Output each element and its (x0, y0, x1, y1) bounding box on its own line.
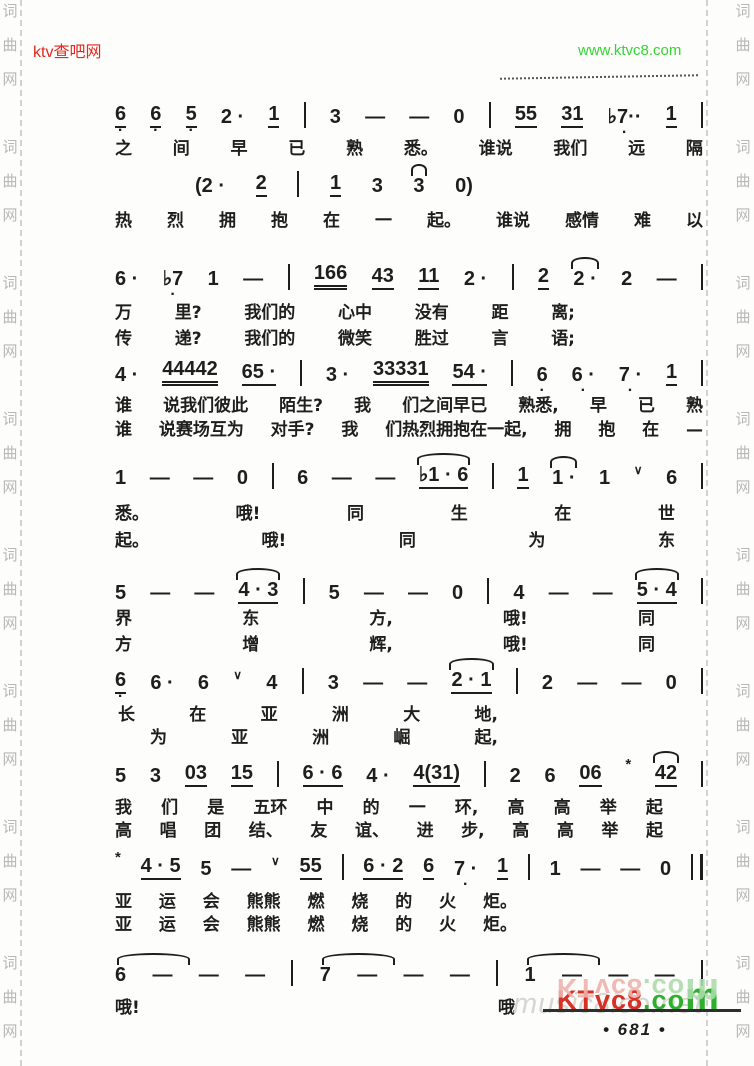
lyric-syllable: 我 (115, 793, 132, 818)
side-watermark-char: 网 (2, 752, 17, 767)
barline (484, 761, 486, 787)
lyric-syllable: 谁 (115, 415, 132, 440)
note-token: ♭1 · 6 (419, 464, 468, 489)
lyric-syllable: 一 (375, 206, 392, 231)
note-token: * (115, 850, 121, 867)
lyrics-row: 界东方,哦!同 (115, 604, 655, 629)
side-watermark-char: 网 (735, 208, 750, 223)
lyric-syllable: 环, (455, 793, 478, 818)
side-watermark-char: 词 (735, 956, 750, 971)
lyric-syllable: 高 (115, 816, 132, 841)
lyric-syllable: 增 (242, 630, 259, 655)
note-token: 06 (579, 762, 601, 787)
lyric-syllable: 亚 (115, 910, 132, 935)
note-token: 4 · (115, 364, 138, 386)
side-watermark-char: 词 (2, 4, 17, 19)
barline (304, 102, 306, 128)
note-token: 65 · (242, 361, 276, 386)
lyric-syllable: 团 (204, 816, 221, 841)
lyric-syllable: 高 (554, 793, 571, 818)
lyric-syllable: 亚 (115, 887, 132, 912)
note-token: 4(31) (413, 762, 460, 787)
barline (297, 171, 299, 197)
lyric-syllable: 同 (638, 604, 655, 629)
lyric-syllable: 在 (554, 499, 571, 524)
side-watermark-char: 曲 (735, 310, 750, 325)
barline (701, 360, 703, 386)
note-token: 7 (320, 964, 331, 986)
barline (528, 854, 530, 880)
note-token: — (150, 582, 170, 604)
barline (701, 264, 703, 290)
lyric-syllable: 对手? (271, 415, 315, 440)
note-token: 2 (538, 265, 549, 290)
lyric-syllable: 我们 (553, 134, 587, 159)
lyric-syllable: 烈 (167, 206, 184, 231)
note-token: — (404, 964, 424, 986)
logo-reflection-m: m (685, 970, 720, 1012)
note-token: 4 · 5 (141, 855, 181, 880)
side-watermark-char: 词 (735, 140, 750, 155)
note-token: — (407, 672, 427, 694)
lyrics-row: 哦!哦 (115, 993, 515, 1018)
lyric-syllable: 拥 (219, 206, 236, 231)
ktvc8-url-watermark: www.ktvc8.com (578, 42, 681, 59)
note-token: 6 (423, 855, 434, 880)
note-token: — (577, 672, 597, 694)
barline (516, 668, 518, 694)
note-token: 1 (330, 172, 341, 197)
lyric-syllable: 我 (354, 391, 371, 416)
barline (701, 761, 703, 787)
note-token: 6 (115, 669, 126, 694)
note-token: — (364, 582, 384, 604)
lyric-syllable: 高 (557, 816, 574, 841)
scanned-sheet-music-page: 词曲网词曲网词曲网词曲网词曲网词曲网词曲网词曲网 词曲网词曲网词曲网词曲网词曲网… (0, 0, 754, 1066)
lyric-syllable: — (686, 420, 703, 440)
lyric-syllable: 地, (474, 700, 497, 725)
lyric-syllable: 炬。 (483, 887, 517, 912)
note-token: 1 (497, 855, 508, 880)
side-watermark-char: 网 (735, 480, 750, 495)
note-token: — (450, 964, 470, 986)
side-watermark-char: 词 (2, 684, 17, 699)
side-watermark-char: 曲 (2, 174, 17, 189)
note-token: — (581, 858, 601, 880)
side-watermark-char: 网 (735, 72, 750, 87)
note-token: 2 (510, 765, 521, 787)
note-token: 6 (297, 467, 308, 489)
lyric-syllable: 早 (231, 134, 248, 159)
note-token: 1 (666, 103, 677, 128)
barline (277, 761, 279, 787)
note-token: 5 (200, 858, 211, 880)
lyric-syllable: 在 (323, 206, 340, 231)
side-watermark-char: 网 (2, 480, 17, 495)
right-side-watermark-column: 词曲网词曲网词曲网词曲网词曲网词曲网词曲网词曲网 (733, 4, 753, 1066)
lyric-syllable: 亚 (231, 723, 248, 748)
side-watermark-char: 网 (2, 72, 17, 87)
lyric-syllable: 结、 (249, 816, 283, 841)
lyric-syllable: 熟 (346, 134, 363, 159)
side-watermark-char: 曲 (2, 854, 17, 869)
lyric-syllable: 说我们彼此 (163, 391, 248, 416)
side-watermark-char: 词 (735, 548, 750, 563)
note-token: (2 · (195, 175, 225, 197)
lyric-syllable: 进 (417, 816, 434, 841)
lyric-syllable: 熊熊 (247, 887, 281, 912)
note-token: 0 (660, 858, 671, 880)
note-token: 43 (372, 265, 394, 290)
note-token: ∨ (271, 855, 280, 868)
barline (701, 668, 703, 694)
barline (512, 264, 514, 290)
side-watermark-char: 词 (2, 140, 17, 155)
notation-row: 5——4 · 35——04——5 · 4 (115, 574, 703, 604)
barline (288, 264, 290, 290)
lyric-syllable: 会 (203, 887, 220, 912)
lyrics-row: 为亚洲崛起, (150, 723, 498, 748)
note-token: 3 · (326, 364, 349, 386)
lyric-syllable: 东 (658, 526, 675, 551)
logo-reflection: KTvc8.com (557, 969, 720, 1012)
note-token: 15 (231, 762, 253, 787)
lyric-syllable: 崛 (393, 723, 410, 748)
lyric-syllable: 言 (491, 324, 508, 349)
note-token: — (621, 672, 641, 694)
lyrics-row: 之间早已熟悉。谁说我们远隔 (115, 134, 703, 159)
note-token: — (194, 582, 214, 604)
note-token: — (152, 964, 172, 986)
notation-row: 6 ·♭71—16643112 ·22 ·2— (115, 260, 703, 290)
lyric-syllable: 方, (369, 604, 392, 629)
note-token: 6 · 6 (303, 762, 343, 787)
lyric-syllable: 起, (475, 723, 498, 748)
note-token: 5 · 4 (637, 579, 677, 604)
lyric-syllable: 亚 (261, 700, 278, 725)
lyric-syllable: 感情 (565, 206, 599, 231)
note-token: 0 (666, 672, 677, 694)
notation-row: 66 ·6∨43——2 · 12——0 (115, 664, 703, 694)
lyric-syllable: 说赛场互为 (159, 415, 244, 440)
side-watermark-char: 词 (735, 820, 750, 835)
lyric-syllable: 已 (288, 134, 305, 159)
note-token: — (409, 106, 429, 128)
lyric-syllable: 火 (439, 910, 456, 935)
lyric-syllable: 抱 (598, 415, 615, 440)
lyric-syllable: 炬。 (483, 910, 517, 935)
note-token: 1 (208, 268, 219, 290)
lyric-syllable: 在 (642, 415, 659, 440)
note-token: — (357, 964, 377, 986)
lyric-syllable: 里? (175, 298, 202, 323)
barline (701, 102, 703, 128)
lyric-syllable: 熟 (686, 391, 703, 416)
lyric-syllable: 唱 (160, 816, 177, 841)
lyric-syllable: 离; (551, 298, 575, 323)
barline (342, 854, 344, 880)
barline (303, 578, 305, 604)
lyric-syllable: 长 (118, 700, 135, 725)
lyric-syllable: 中 (317, 793, 334, 818)
lyric-syllable: 同 (638, 630, 655, 655)
note-token: 5 (186, 103, 197, 128)
note-token: 4 · (366, 765, 389, 787)
barline (496, 960, 498, 986)
note-token: 44442 (162, 358, 218, 386)
note-token: 5 (115, 582, 126, 604)
lyric-syllable: 没有 (415, 298, 449, 323)
note-token: 6 (666, 467, 677, 489)
note-token: 11 (418, 265, 439, 290)
lyric-syllable: 哦! (503, 630, 528, 655)
note-token: — (657, 268, 677, 290)
left-dashed-border (20, 0, 22, 1066)
lyric-syllable: 运 (159, 887, 176, 912)
lyric-syllable: 们 (161, 793, 178, 818)
lyrics-row: 亚运会熊熊燃烧的火炬。 (115, 910, 517, 935)
left-side-watermark-column: 词曲网词曲网词曲网词曲网词曲网词曲网词曲网词曲网 (0, 4, 20, 1066)
note-token: 166 (314, 262, 347, 290)
note-token: 55 (300, 855, 322, 880)
lyric-syllable: 距 (491, 298, 508, 323)
note-token: 1 · (552, 467, 575, 489)
note-token: 03 (185, 762, 207, 787)
note-token: 6 · (150, 672, 173, 694)
lyric-syllable: 界 (115, 604, 132, 629)
note-token: * (625, 757, 631, 774)
note-token: 0) (455, 175, 473, 197)
side-watermark-char: 词 (735, 4, 750, 19)
lyrics-row: 起。哦!同为东 (115, 526, 675, 551)
lyric-syllable: 火 (439, 887, 456, 912)
lyric-syllable: 之 (115, 134, 132, 159)
side-watermark-char: 曲 (735, 854, 750, 869)
lyric-syllable: 远 (628, 134, 645, 159)
lyric-syllable: 胜过 (415, 324, 449, 349)
barline (487, 578, 489, 604)
lyric-syllable: 们之间早已 (402, 391, 487, 416)
side-watermark-char: 词 (2, 820, 17, 835)
side-watermark-char: 词 (735, 276, 750, 291)
note-token: 2 · (573, 268, 596, 290)
lyric-syllable: 熊熊 (247, 910, 281, 935)
note-token: 5 (115, 765, 126, 787)
side-watermark-char: 曲 (735, 718, 750, 733)
lyrics-row: 传递?我们的微笑胜过言语; (115, 324, 575, 349)
note-token: — (363, 672, 383, 694)
side-watermark-char: 网 (2, 888, 17, 903)
lyrics-row: 高唱团结、友谊、进步,高高举起 (115, 816, 663, 841)
note-token: 4 · 3 (238, 579, 278, 604)
lyric-syllable: 友 (310, 816, 327, 841)
barline (492, 463, 494, 489)
barline (300, 360, 302, 386)
lyric-syllable: 万 (115, 298, 132, 323)
note-token: 55 (515, 103, 537, 128)
lyric-syllable: 我们的 (244, 298, 295, 323)
note-token: 1 (525, 964, 536, 986)
note-token: 6 · 2 (363, 855, 403, 880)
ktv-chaba-watermark: ktv查吧网 (33, 38, 101, 62)
lyric-syllable: 心中 (338, 298, 372, 323)
lyric-syllable: 的 (395, 887, 412, 912)
note-token: 6 (537, 364, 548, 386)
lyric-syllable: 步, (461, 816, 484, 841)
lyric-syllable: 悉。 (115, 499, 149, 524)
lyric-syllable: 高 (512, 816, 529, 841)
lyric-syllable: 以 (686, 206, 703, 231)
lyric-syllable: 高 (507, 793, 524, 818)
note-token: 6 (115, 103, 126, 128)
note-token: 6 · (572, 364, 595, 386)
logo-reflection-red: KTvc8 (557, 973, 643, 1003)
lyrics-row: 热烈拥抱在一起。谁说感情难以 (115, 206, 703, 231)
lyric-syllable: 运 (159, 910, 176, 935)
lyric-syllable: 谁说 (496, 206, 530, 231)
note-token: — (408, 582, 428, 604)
lyrics-row: 谁说赛场互为对手?我们热烈拥抱在一起,拥抱在— (115, 415, 703, 440)
note-token: 7 · (454, 858, 477, 880)
lyric-syllable: 的 (363, 793, 380, 818)
lyric-syllable: 同 (399, 526, 416, 551)
lyric-syllable: 举 (600, 793, 617, 818)
note-token: — (243, 268, 263, 290)
note-token: — (375, 467, 395, 489)
note-token: 5 (329, 582, 340, 604)
note-token: 3 (150, 765, 161, 787)
note-token: ∨ (634, 464, 643, 477)
lyric-syllable: 我们的 (244, 324, 295, 349)
lyric-syllable: 烧 (351, 887, 368, 912)
note-token: 3 (413, 175, 424, 197)
side-watermark-char: 曲 (2, 310, 17, 325)
lyric-syllable: 传 (115, 324, 132, 349)
lyric-syllable: 悉。 (404, 134, 438, 159)
lyric-syllable: 隔 (686, 134, 703, 159)
note-token: 33331 (373, 358, 429, 386)
notation-row: 1——06——♭1 · 611 ·1∨6 (115, 459, 703, 489)
barline (302, 668, 304, 694)
barline (272, 463, 274, 489)
note-token: 6 (115, 964, 126, 986)
scan-artifact-dotted-line (500, 74, 698, 79)
lyric-syllable: 燃 (308, 887, 325, 912)
lyric-syllable: 大 (403, 700, 420, 725)
note-token: 3 (372, 175, 383, 197)
lyric-syllable: 起。 (115, 526, 149, 551)
note-token: 1 (599, 467, 610, 489)
note-token: — (199, 964, 219, 986)
lyric-syllable: 一 (409, 793, 426, 818)
side-watermark-char: 网 (735, 888, 750, 903)
note-token: 0 (453, 106, 464, 128)
lyric-syllable: 举 (601, 816, 618, 841)
note-token: 3 (328, 672, 339, 694)
lyric-syllable: 谊、 (355, 816, 389, 841)
lyric-syllable: 我 (341, 415, 358, 440)
note-token: 6 (198, 672, 209, 694)
lyric-syllable: 难 (634, 206, 651, 231)
lyric-syllable: 为 (528, 526, 545, 551)
lyric-syllable: 是 (207, 793, 224, 818)
lyric-syllable: 谁 (115, 391, 132, 416)
lyric-syllable: 起 (646, 816, 663, 841)
side-watermark-char: 曲 (735, 446, 750, 461)
lyric-syllable: 谁说 (479, 134, 513, 159)
lyrics-row: 长在亚洲大地, (118, 700, 498, 725)
note-token: 2 · (464, 268, 487, 290)
side-watermark-char: 词 (735, 412, 750, 427)
lyric-syllable: 熟悉, (518, 391, 558, 416)
lyric-syllable: 烧 (351, 910, 368, 935)
note-token: ∨ (233, 669, 242, 682)
side-watermark-char: 网 (2, 1024, 17, 1039)
notation-row: 6652 ·13——05531♭7··1 (115, 98, 703, 128)
side-watermark-char: 曲 (2, 718, 17, 733)
lyric-syllable: 起。 (427, 206, 461, 231)
lyric-syllable: 生 (451, 499, 468, 524)
notation-row: 5303156 · 64 ·4(31)2606*42 (115, 757, 703, 787)
note-token: 4 (513, 582, 524, 604)
note-token: 2 (621, 268, 632, 290)
lyric-syllable: 递? (175, 324, 202, 349)
lyrics-row: 我们是五环中的一环,高高举起 (115, 793, 663, 818)
lyrics-row: 方增辉,哦!同 (115, 630, 655, 655)
note-token: 1 (666, 361, 677, 386)
note-token: — (231, 858, 251, 880)
side-watermark-char: 网 (2, 616, 17, 631)
lyric-syllable: 哦! (115, 993, 140, 1018)
note-token: 2 (256, 172, 267, 197)
lyric-syllable: 五环 (253, 793, 287, 818)
note-token: — (593, 582, 613, 604)
note-token: 2 · 1 (451, 669, 491, 694)
note-token: — (193, 467, 213, 489)
lyrics-row: 亚运会熊熊燃烧的火炬。 (115, 887, 517, 912)
barline (489, 102, 491, 128)
lyrics-row: 悉。哦!同生在世 (115, 499, 675, 524)
side-watermark-char: 网 (2, 344, 17, 359)
lyric-syllable: 方 (115, 630, 132, 655)
lyric-syllable: 为 (150, 723, 167, 748)
note-token: 6 (544, 765, 555, 787)
note-token: — (332, 467, 352, 489)
notation-row: (2 ·21330) (195, 167, 473, 197)
note-token: 1 (115, 467, 126, 489)
note-token: 1 (268, 103, 279, 128)
lyric-syllable: 拥 (554, 415, 571, 440)
right-dashed-border (706, 0, 708, 1066)
lyric-syllable: 洲 (312, 723, 329, 748)
note-token: 31 (561, 103, 583, 128)
note-token: 54 · (452, 361, 486, 386)
lyric-syllable: 会 (203, 910, 220, 935)
logo-underline (543, 1009, 741, 1012)
lyric-syllable: 起 (646, 793, 663, 818)
note-token: 3 (330, 106, 341, 128)
lyric-syllable: 语; (551, 324, 575, 349)
side-watermark-char: 词 (735, 684, 750, 699)
side-watermark-char: 网 (735, 752, 750, 767)
note-token: — (620, 858, 640, 880)
side-watermark-char: 网 (735, 344, 750, 359)
lyric-syllable: 们热烈拥抱在一起, (385, 415, 527, 440)
lyric-syllable: 陌生? (279, 391, 323, 416)
barline (291, 960, 293, 986)
note-token: — (365, 106, 385, 128)
note-token: 6 · (115, 268, 138, 290)
